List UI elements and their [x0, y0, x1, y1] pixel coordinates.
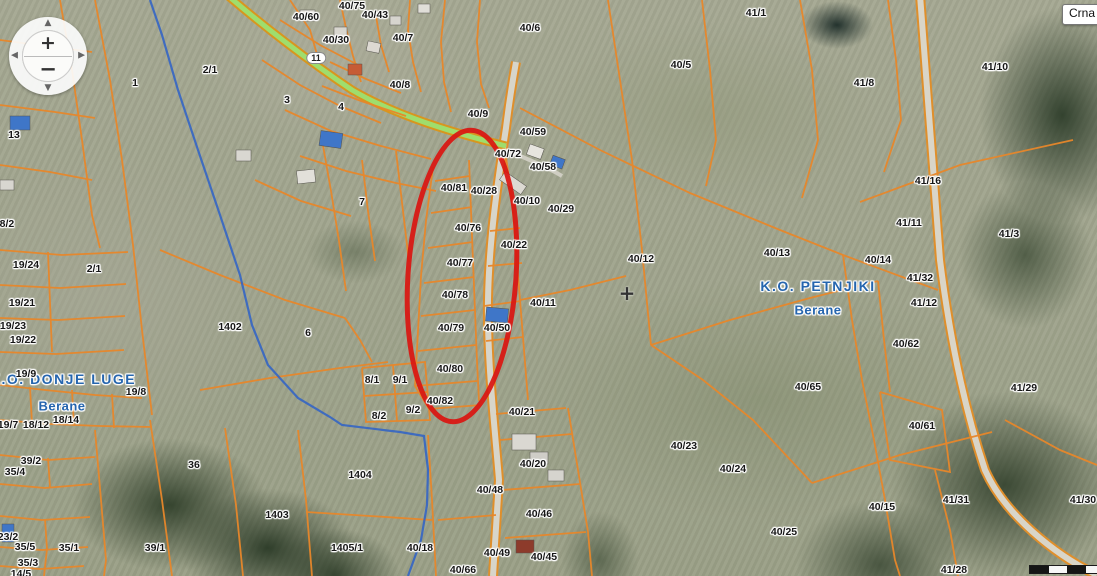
road-layer: [226, 0, 1097, 576]
pan-down-button[interactable]: ▼: [45, 84, 52, 93]
map-pan-zoom-control: ▲ ◀ ▶ ▼ + −: [9, 17, 87, 95]
pan-up-button[interactable]: ▲: [45, 19, 52, 28]
highlight-ellipse: [398, 127, 526, 426]
zoom-buttons: + −: [22, 30, 74, 82]
map-graphics-layer: [0, 0, 1097, 576]
zoom-out-button[interactable]: −: [22, 56, 74, 82]
scale-segment: [1086, 566, 1097, 573]
parcel-boundary-layer: [0, 0, 1097, 576]
region-tooltip: Crna: [1062, 4, 1097, 25]
map-canvas[interactable]: K.O. DONJE LUGEBeraneK.O. PETNJIKIBerane…: [0, 0, 1097, 576]
scale-segment: [1049, 566, 1068, 573]
pan-left-button[interactable]: ◀: [11, 52, 18, 61]
scale-segment: [1067, 566, 1086, 573]
map-scale-bar: [1029, 565, 1097, 574]
zoom-in-button[interactable]: +: [22, 30, 74, 56]
pan-right-button[interactable]: ▶: [78, 52, 85, 61]
scale-segment: [1030, 566, 1049, 573]
